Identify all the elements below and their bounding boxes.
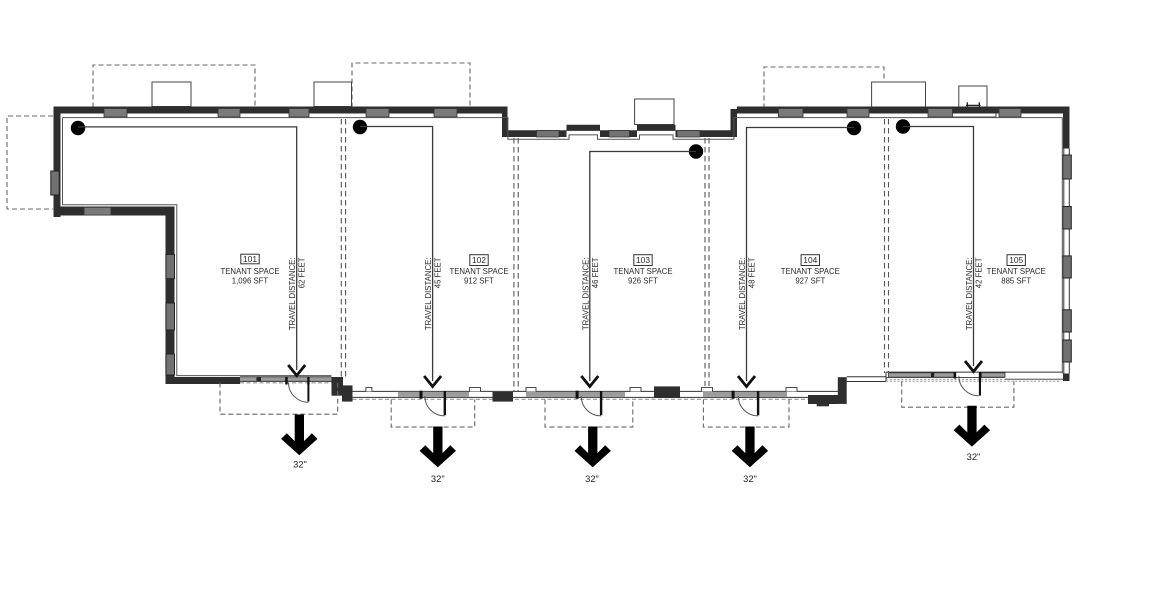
svg-text:32": 32"	[585, 473, 599, 484]
svg-text:102: 102	[472, 255, 486, 265]
svg-text:32": 32"	[431, 473, 445, 484]
svg-text:TRAVEL DISTANCE:: TRAVEL DISTANCE:	[581, 258, 590, 331]
svg-text:885 SFT: 885 SFT	[1001, 277, 1031, 286]
svg-text:46 FEET: 46 FEET	[591, 257, 600, 288]
svg-text:105: 105	[1009, 255, 1023, 265]
svg-text:48 FEET: 48 FEET	[748, 257, 757, 288]
svg-text:1,096 SFT: 1,096 SFT	[232, 277, 269, 286]
svg-text:103: 103	[636, 255, 650, 265]
svg-text:45 FEET: 45 FEET	[434, 257, 443, 288]
svg-text:TENANT SPACE: TENANT SPACE	[613, 267, 672, 276]
svg-text:32": 32"	[743, 473, 757, 484]
svg-text:62 FEET: 62 FEET	[298, 257, 307, 288]
svg-text:TRAVEL DISTANCE:: TRAVEL DISTANCE:	[288, 258, 297, 331]
svg-text:42 FEET: 42 FEET	[975, 257, 984, 288]
svg-text:926 SFT: 926 SFT	[628, 277, 658, 286]
svg-text:104: 104	[803, 255, 817, 265]
svg-text:TENANT SPACE: TENANT SPACE	[781, 267, 840, 276]
svg-text:912 SFT: 912 SFT	[464, 277, 494, 286]
svg-text:927 SFT: 927 SFT	[795, 277, 825, 286]
svg-text:TRAVEL DISTANCE:: TRAVEL DISTANCE:	[738, 258, 747, 331]
svg-text:TENANT SPACE: TENANT SPACE	[449, 267, 508, 276]
svg-text:TRAVEL DISTANCE:: TRAVEL DISTANCE:	[965, 258, 974, 331]
svg-text:32": 32"	[293, 459, 307, 470]
svg-text:TENANT SPACE: TENANT SPACE	[220, 267, 279, 276]
svg-text:101: 101	[243, 254, 257, 264]
svg-text:TRAVEL DISTANCE:: TRAVEL DISTANCE:	[424, 258, 433, 331]
svg-text:TENANT SPACE: TENANT SPACE	[987, 267, 1046, 276]
svg-text:32": 32"	[967, 451, 981, 462]
